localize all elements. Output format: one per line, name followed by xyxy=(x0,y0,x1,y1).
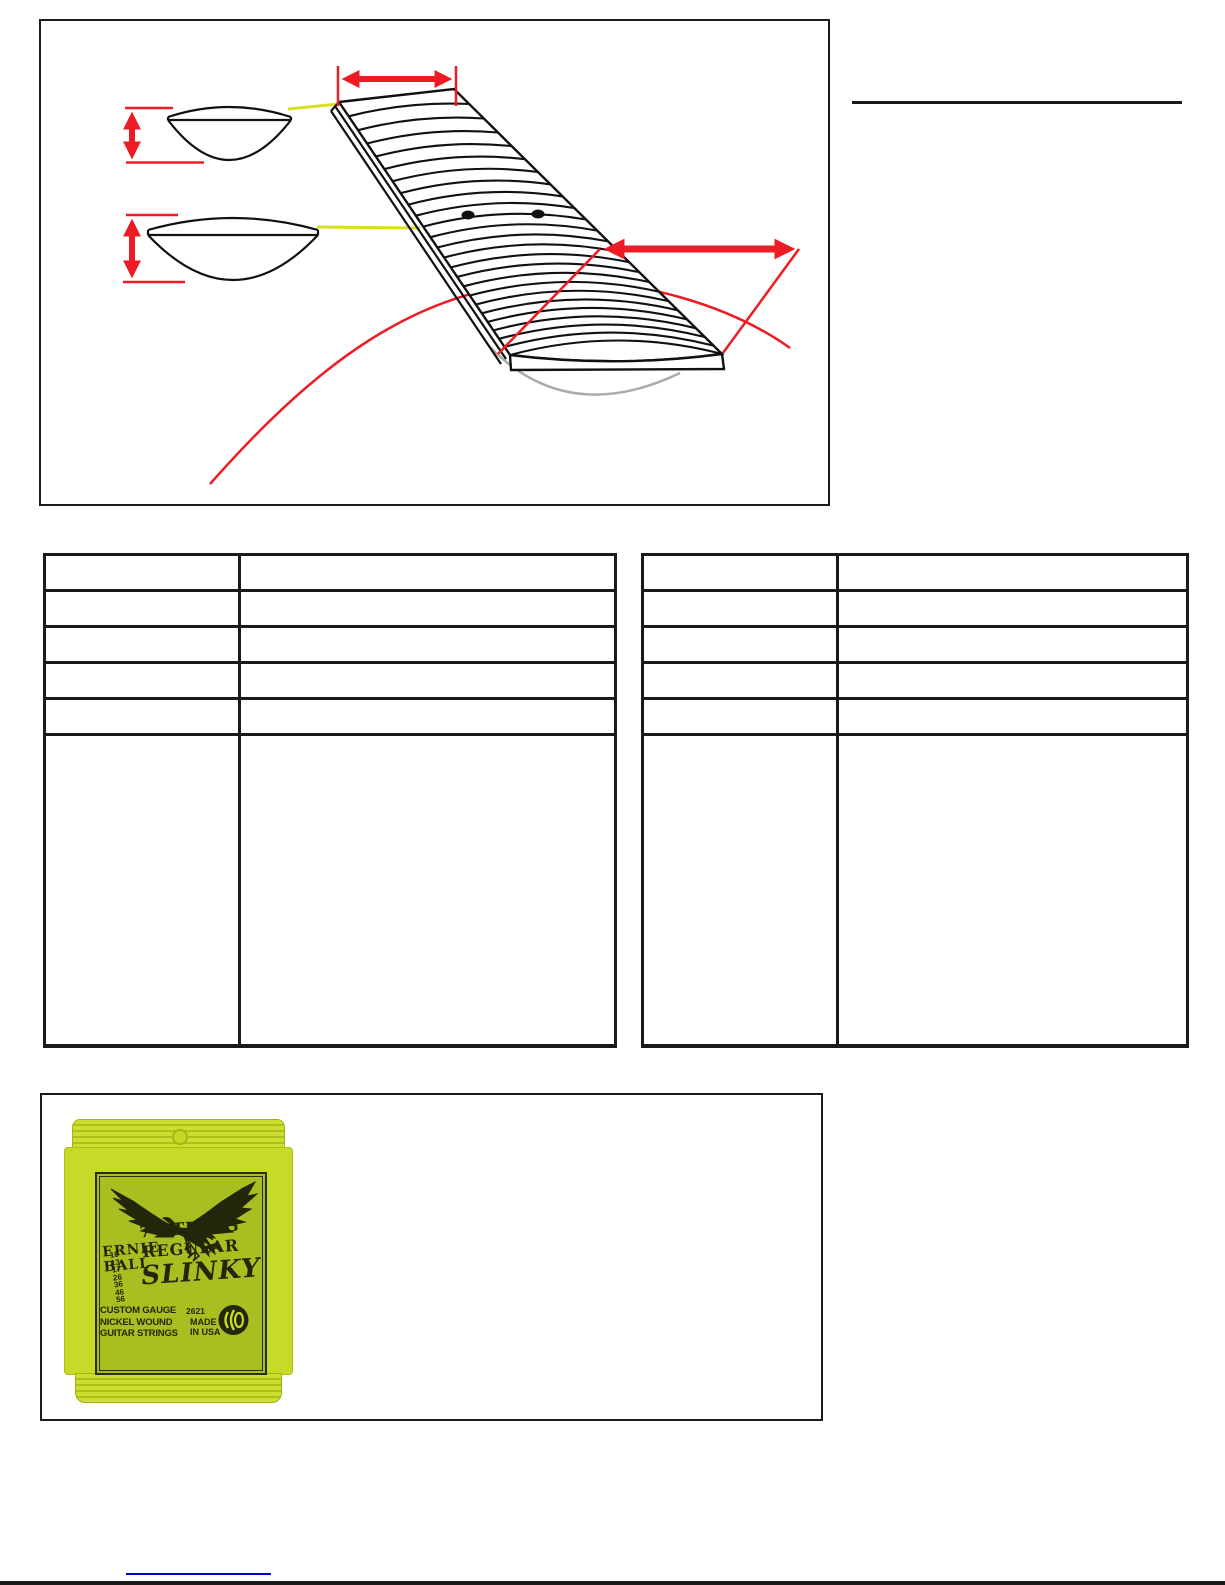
table-cell xyxy=(46,556,241,589)
table-cell xyxy=(241,592,614,625)
table-cell xyxy=(46,736,241,1044)
table-row xyxy=(644,628,1186,664)
package-bottom-crimp xyxy=(75,1373,282,1403)
table-cell xyxy=(839,592,1186,625)
string-package: ERNIE BALL 10 13 17 26 36 46 56 7-STRING… xyxy=(64,1117,293,1406)
model-number: 2621 xyxy=(186,1306,205,1316)
section-title-rule xyxy=(852,101,1182,104)
nut-section-pointer-line xyxy=(288,104,339,109)
heel-cross-section-top-arc xyxy=(148,218,318,230)
neck-diagram xyxy=(41,21,827,503)
table-cell xyxy=(644,664,839,697)
made-in-usa: MADE IN USA xyxy=(190,1317,221,1337)
product-title: 7-STRING REGULAR SLINKY xyxy=(138,1216,245,1292)
table-cell xyxy=(46,700,241,733)
table-row xyxy=(46,556,614,592)
desc-line3: GUITAR STRINGS xyxy=(100,1328,178,1340)
page-bottom-edge xyxy=(0,1581,1225,1585)
spec-table-right xyxy=(641,553,1189,1048)
slinky-ball-end-logo xyxy=(218,1304,249,1336)
table-cell xyxy=(839,628,1186,661)
table-cell xyxy=(46,664,241,697)
nut-cross-section-top-arc xyxy=(168,107,291,117)
gauge-value: 56 xyxy=(116,1295,126,1304)
table-cell xyxy=(839,700,1186,733)
table-row xyxy=(46,700,614,736)
made-line1: MADE xyxy=(190,1317,221,1327)
table-cell xyxy=(644,736,839,1044)
heel-section-pointer-line xyxy=(317,227,420,228)
table-cell xyxy=(241,736,614,1044)
table-row xyxy=(644,592,1186,628)
table-cell xyxy=(241,628,614,661)
table-cell xyxy=(46,628,241,661)
table-row xyxy=(644,664,1186,700)
table-row xyxy=(46,628,614,664)
table-cell xyxy=(644,700,839,733)
table-cell xyxy=(839,664,1186,697)
table-row xyxy=(644,700,1186,736)
hang-hole xyxy=(172,1129,188,1145)
heel-cross-section-bottom-arc xyxy=(148,235,318,280)
table-cell xyxy=(644,628,839,661)
table-row xyxy=(644,556,1186,592)
desc-line1: CUSTOM GAUGE xyxy=(100,1305,178,1317)
made-line2: IN USA xyxy=(190,1327,221,1337)
product-description: CUSTOM GAUGE NICKEL WOUND GUITAR STRINGS xyxy=(100,1305,178,1340)
radius-arm-right xyxy=(723,249,799,353)
table-cell xyxy=(644,556,839,589)
neck-diagram-figure-box xyxy=(39,19,830,506)
spec-table-left xyxy=(43,553,617,1048)
table-row xyxy=(46,736,614,1044)
table-cell xyxy=(644,592,839,625)
table-cell xyxy=(241,556,614,589)
package-top-crimp xyxy=(72,1119,285,1149)
nut-cross-section-bottom-arc xyxy=(168,120,291,160)
table-cell xyxy=(241,700,614,733)
inlay-dot xyxy=(532,210,545,219)
table-cell xyxy=(241,664,614,697)
table-row xyxy=(644,736,1186,1044)
inlay-dot xyxy=(462,211,475,220)
table-row xyxy=(46,664,614,700)
desc-line2: NICKEL WOUND xyxy=(100,1317,178,1329)
table-row xyxy=(46,592,614,628)
table-cell xyxy=(46,592,241,625)
table-cell xyxy=(839,556,1186,589)
table-cell xyxy=(839,736,1186,1044)
footer-link-underline[interactable] xyxy=(126,1573,271,1575)
